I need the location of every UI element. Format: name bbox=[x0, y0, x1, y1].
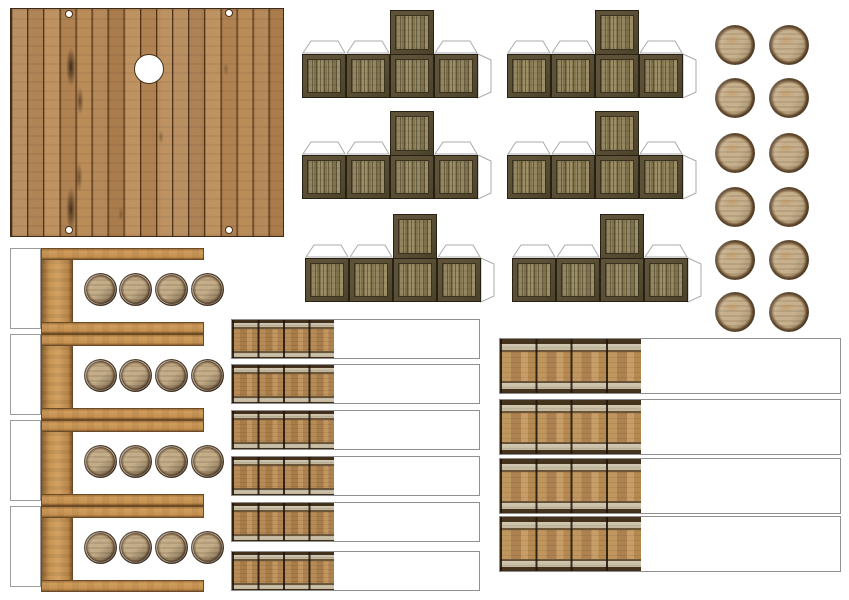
glue-tab-right bbox=[687, 257, 703, 303]
shelf-top-bar bbox=[41, 420, 204, 432]
wrap-strip-blank bbox=[641, 517, 840, 571]
wrap-strip-blank bbox=[334, 457, 479, 495]
glue-tab bbox=[507, 141, 551, 155]
shelf-barrel bbox=[84, 359, 117, 392]
wrap-strip-wood bbox=[500, 517, 641, 571]
glue-tab bbox=[302, 141, 346, 155]
shelf-unit bbox=[10, 506, 225, 592]
crate-top-face bbox=[390, 111, 434, 156]
crate-face bbox=[434, 155, 478, 199]
crate-face bbox=[507, 54, 551, 98]
shelf-barrel bbox=[191, 531, 224, 564]
shelf-barrel bbox=[191, 359, 224, 392]
crate-face bbox=[393, 258, 437, 302]
barrel-lid bbox=[715, 78, 755, 118]
glue-tab bbox=[556, 244, 600, 258]
wrap-strip-small bbox=[231, 502, 480, 542]
wrap-strip-blank bbox=[334, 552, 479, 590]
glue-tab bbox=[551, 40, 595, 54]
crate-face bbox=[346, 155, 390, 199]
glue-tab bbox=[512, 244, 556, 258]
crate-face bbox=[639, 54, 683, 98]
wrap-strip-small bbox=[231, 456, 480, 496]
crate-net bbox=[302, 10, 494, 99]
crate-face bbox=[390, 54, 434, 98]
wrap-strip-wood bbox=[232, 365, 334, 403]
shelf-barrel bbox=[191, 273, 224, 306]
crate-net bbox=[512, 214, 704, 303]
crate-face bbox=[551, 54, 595, 98]
shelf-barrel bbox=[155, 273, 188, 306]
shelf-unit bbox=[10, 420, 225, 506]
wrap-strip-wood bbox=[232, 552, 334, 590]
crate-face bbox=[644, 258, 688, 302]
shelf-barrel bbox=[119, 531, 152, 564]
crate-face bbox=[556, 258, 600, 302]
wrap-strip-large bbox=[499, 399, 841, 455]
deck-center-hole bbox=[134, 54, 164, 84]
wrap-strip-blank bbox=[334, 365, 479, 403]
wrap-strip-wood bbox=[232, 457, 334, 495]
wrap-strip-blank bbox=[334, 503, 479, 541]
crate-face bbox=[434, 54, 478, 98]
wrap-strip-blank bbox=[334, 320, 479, 358]
shelf-glue-tab bbox=[10, 248, 41, 329]
crate-net bbox=[507, 10, 699, 99]
crate-face bbox=[302, 54, 346, 98]
glue-tab-right bbox=[682, 53, 698, 99]
deck-corner-hole bbox=[65, 226, 73, 234]
shelf-barrel bbox=[155, 531, 188, 564]
barrel-lid bbox=[769, 187, 809, 227]
wrap-strip-small bbox=[231, 410, 480, 450]
barrel-lid bbox=[769, 25, 809, 65]
glue-tab bbox=[551, 141, 595, 155]
glue-tab bbox=[434, 141, 478, 155]
shelf-glue-tab bbox=[10, 506, 41, 587]
glue-tab bbox=[507, 40, 551, 54]
glue-tab bbox=[639, 40, 683, 54]
deck-knots bbox=[11, 9, 283, 236]
shelf-barrel bbox=[119, 445, 152, 478]
crate-face bbox=[512, 258, 556, 302]
wrap-strip-blank bbox=[334, 411, 479, 449]
crate-net bbox=[305, 214, 497, 303]
crate-top-face bbox=[600, 214, 644, 259]
shelf-post bbox=[41, 506, 73, 586]
glue-tab bbox=[305, 244, 349, 258]
barrel-lid bbox=[715, 25, 755, 65]
crate-net bbox=[302, 111, 494, 200]
crate-face bbox=[390, 155, 434, 199]
glue-tab bbox=[437, 244, 481, 258]
crate-face bbox=[346, 54, 390, 98]
glue-tab bbox=[346, 40, 390, 54]
shelf-unit bbox=[10, 334, 225, 420]
wrap-strip-wood bbox=[232, 503, 334, 541]
shelf-bottom-bar bbox=[41, 580, 204, 592]
shelf-top-bar bbox=[41, 506, 204, 518]
wrap-strip-large bbox=[499, 516, 841, 572]
glue-tab-right bbox=[477, 53, 493, 99]
shelf-barrel bbox=[155, 359, 188, 392]
crate-face bbox=[437, 258, 481, 302]
shelf-barrel bbox=[119, 359, 152, 392]
shelf-bottom-bar bbox=[41, 494, 204, 506]
shelf-top-bar bbox=[41, 334, 204, 346]
barrel-lid bbox=[715, 292, 755, 332]
crate-top-face bbox=[595, 111, 639, 156]
shelf-post bbox=[41, 420, 73, 500]
barrel-lid bbox=[715, 187, 755, 227]
shelf-barrel bbox=[191, 445, 224, 478]
wrap-strip-blank bbox=[641, 339, 840, 393]
shelf-unit bbox=[10, 248, 225, 334]
crate-face bbox=[349, 258, 393, 302]
wrap-strip-small bbox=[231, 551, 480, 591]
crate-face bbox=[595, 54, 639, 98]
deck-panel bbox=[10, 8, 284, 237]
crate-face bbox=[507, 155, 551, 199]
wrap-strip-wood bbox=[500, 459, 641, 513]
papercraft-sheet bbox=[0, 0, 849, 600]
crate-top-face bbox=[595, 10, 639, 55]
crate-top-face bbox=[393, 214, 437, 259]
crate-face bbox=[302, 155, 346, 199]
wrap-strip-blank bbox=[641, 400, 840, 454]
glue-tab bbox=[302, 40, 346, 54]
glue-tab-right bbox=[477, 154, 493, 200]
shelf-bottom-bar bbox=[41, 408, 204, 420]
wrap-strip-large bbox=[499, 458, 841, 514]
crate-face bbox=[595, 155, 639, 199]
wrap-strip-large bbox=[499, 338, 841, 394]
glue-tab bbox=[349, 244, 393, 258]
glue-tab bbox=[434, 40, 478, 54]
shelf-barrel bbox=[84, 531, 117, 564]
crate-net bbox=[507, 111, 699, 200]
glue-tab-right bbox=[682, 154, 698, 200]
wrap-strip-wood bbox=[500, 339, 641, 393]
shelf-top-bar bbox=[41, 248, 204, 260]
deck-corner-hole bbox=[225, 226, 233, 234]
wrap-strip-wood bbox=[500, 400, 641, 454]
wrap-strip-small bbox=[231, 319, 480, 359]
shelf-barrel bbox=[155, 445, 188, 478]
deck-corner-hole bbox=[225, 9, 233, 17]
glue-tab bbox=[644, 244, 688, 258]
barrel-lid bbox=[769, 240, 809, 280]
glue-tab-right bbox=[480, 257, 496, 303]
barrel-lid bbox=[769, 78, 809, 118]
barrel-lid bbox=[769, 292, 809, 332]
shelf-barrel bbox=[119, 273, 152, 306]
crate-face bbox=[305, 258, 349, 302]
barrel-lid bbox=[715, 133, 755, 173]
crate-face bbox=[600, 258, 644, 302]
crate-face bbox=[639, 155, 683, 199]
shelf-barrel bbox=[84, 445, 117, 478]
barrel-lid bbox=[769, 133, 809, 173]
crate-face bbox=[551, 155, 595, 199]
wrap-strip-wood bbox=[232, 320, 334, 358]
shelf-barrel bbox=[84, 273, 117, 306]
barrel-lid bbox=[715, 240, 755, 280]
deck-corner-hole bbox=[65, 10, 73, 18]
wrap-strip-wood bbox=[232, 411, 334, 449]
shelf-post bbox=[41, 334, 73, 414]
shelf-glue-tab bbox=[10, 334, 41, 415]
shelf-glue-tab bbox=[10, 420, 41, 501]
glue-tab bbox=[639, 141, 683, 155]
wrap-strip-blank bbox=[641, 459, 840, 513]
shelf-bottom-bar bbox=[41, 322, 204, 334]
wrap-strip-small bbox=[231, 364, 480, 404]
shelf-post bbox=[41, 248, 73, 328]
crate-top-face bbox=[390, 10, 434, 55]
glue-tab bbox=[346, 141, 390, 155]
